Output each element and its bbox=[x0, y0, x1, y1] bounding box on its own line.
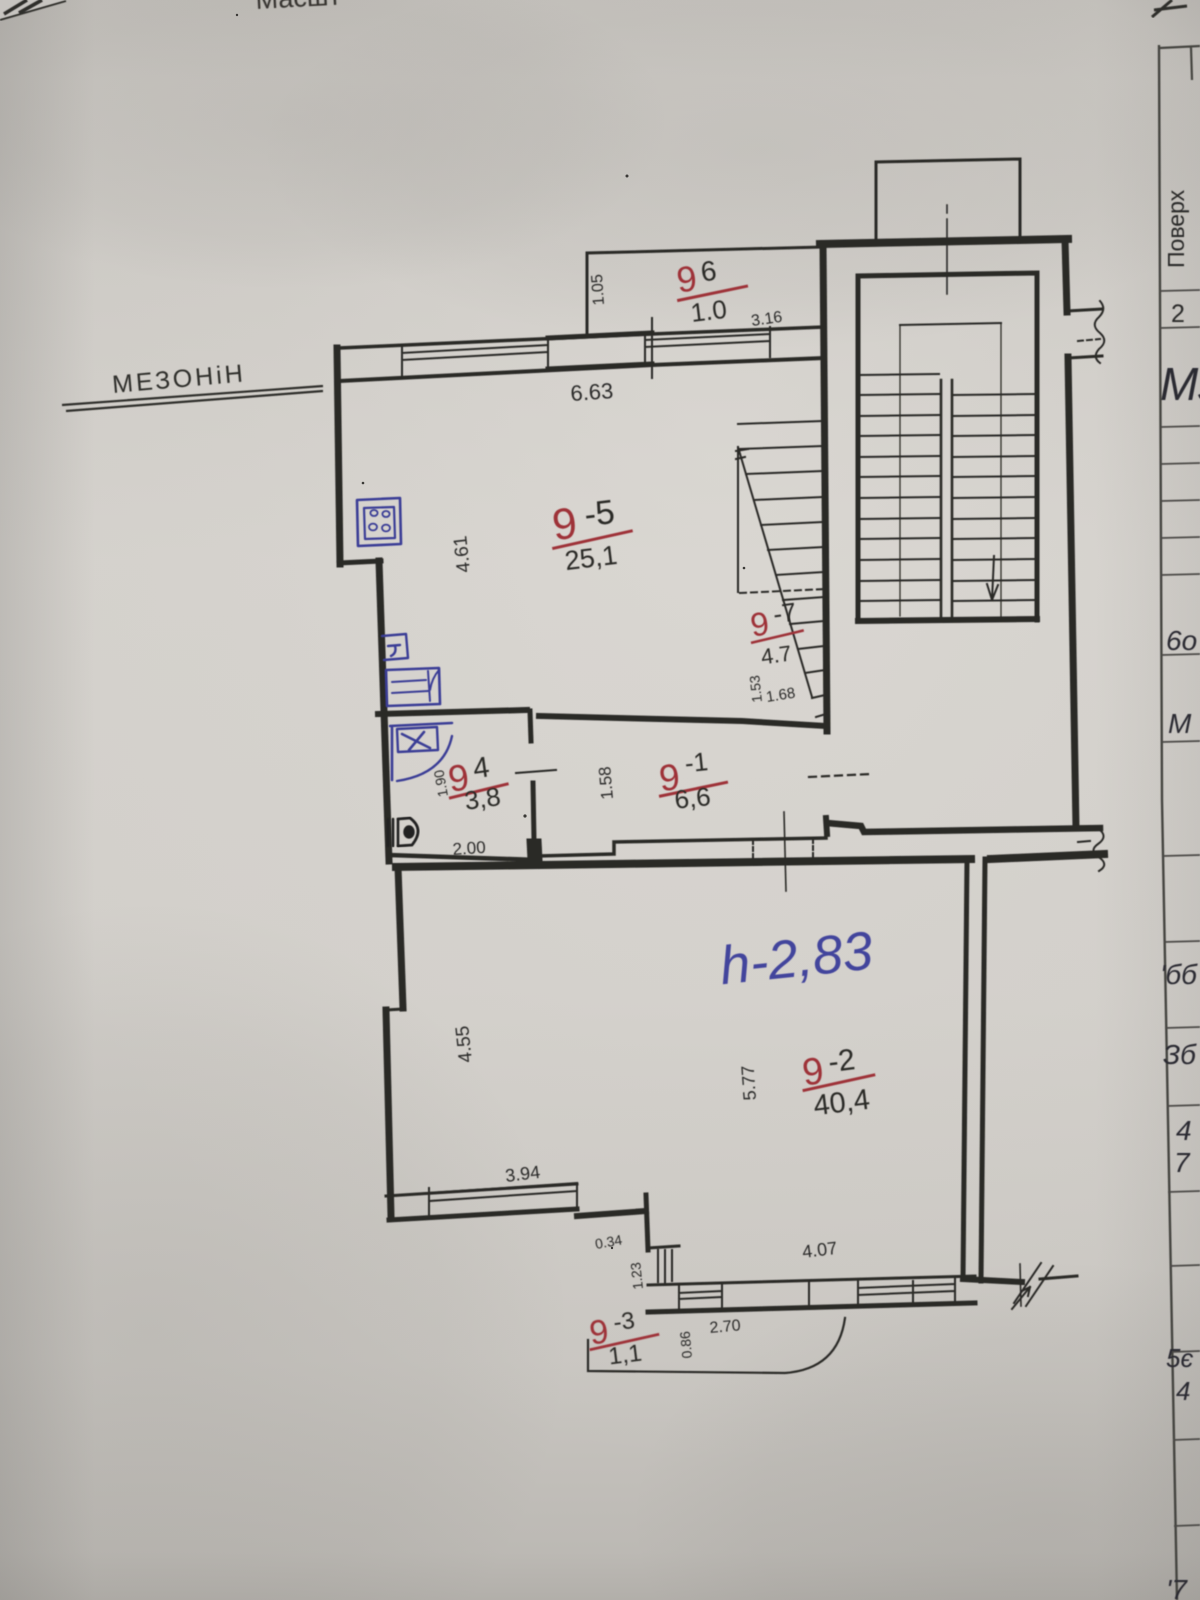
svg-text:1.0: 1.0 bbox=[689, 294, 729, 328]
svg-text:3,8: 3,8 bbox=[462, 781, 502, 816]
svg-text:4.61: 4.61 bbox=[450, 535, 475, 574]
svg-text:6о: 6о bbox=[1166, 625, 1197, 656]
svg-text:2.70: 2.70 bbox=[709, 1317, 742, 1337]
svg-text:6,6: 6,6 bbox=[673, 781, 712, 815]
svg-text:3.94: 3.94 bbox=[504, 1162, 541, 1186]
svg-text:5є: 5є bbox=[1166, 1343, 1193, 1373]
svg-text:4.07: 4.07 bbox=[801, 1238, 838, 1262]
svg-text:2.00: 2.00 bbox=[452, 838, 486, 859]
svg-text:6.63: 6.63 bbox=[570, 378, 614, 406]
svg-text:1.58: 1.58 bbox=[595, 766, 617, 801]
svg-text:Мз: Мз bbox=[1160, 358, 1200, 410]
svg-text:1.23: 1.23 bbox=[627, 1261, 646, 1290]
svg-text:Поверх: Поверх bbox=[1163, 189, 1189, 268]
svg-text:Зб: Зб bbox=[1163, 1039, 1197, 1070]
svg-text:'7: '7 bbox=[1166, 1574, 1188, 1600]
svg-text:4.55: 4.55 bbox=[452, 1025, 477, 1064]
svg-text:'бб: 'бб bbox=[1160, 959, 1198, 990]
svg-text:5.77: 5.77 bbox=[738, 1065, 760, 1101]
svg-text:1.53: 1.53 bbox=[746, 674, 765, 703]
svg-text:-2: -2 bbox=[826, 1043, 857, 1079]
svg-text:-3: -3 bbox=[612, 1307, 636, 1336]
svg-text:40,4: 40,4 bbox=[812, 1084, 872, 1123]
svg-text:-1: -1 bbox=[683, 746, 709, 778]
svg-text:1,1: 1,1 bbox=[607, 1340, 643, 1371]
svg-text:4: 4 bbox=[1176, 1376, 1190, 1406]
svg-text:2: 2 bbox=[1171, 300, 1185, 328]
svg-text:-7: -7 bbox=[771, 596, 798, 629]
svg-text:-5: -5 bbox=[582, 493, 617, 534]
svg-text:1.05: 1.05 bbox=[589, 274, 608, 306]
svg-text:4: 4 bbox=[1176, 1115, 1192, 1146]
svg-text:25,1: 25,1 bbox=[563, 540, 619, 576]
svg-text:0.86: 0.86 bbox=[677, 1330, 695, 1359]
svg-text:4.7: 4.7 bbox=[759, 640, 793, 669]
svg-text:М: М bbox=[1168, 708, 1192, 739]
svg-text:7: 7 bbox=[1174, 1147, 1191, 1178]
